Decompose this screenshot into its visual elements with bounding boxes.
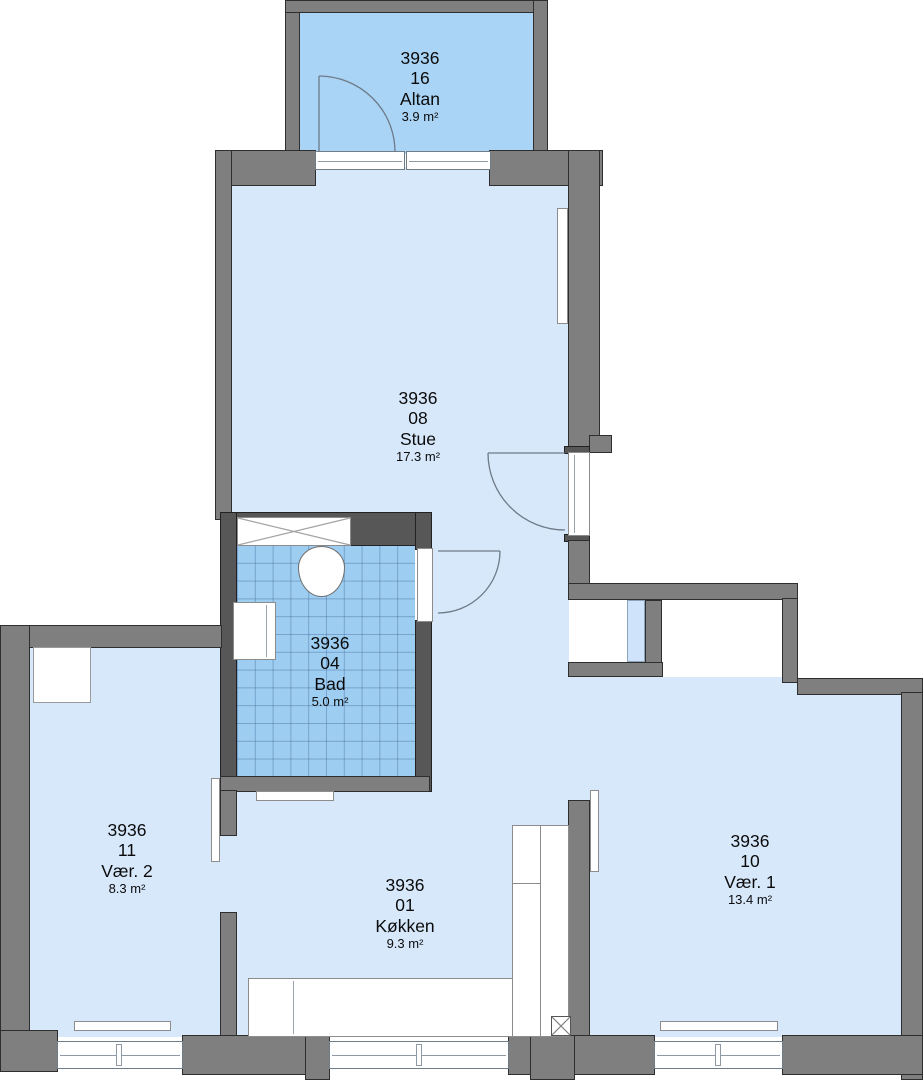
bathroom-wall-right-upper (415, 512, 432, 550)
kitchen-counter-right-upper (512, 825, 541, 884)
balcony-door-window-right (406, 151, 491, 170)
exterior-wall-bottom-1-step (305, 1035, 330, 1080)
room-number: 01 (375, 895, 434, 915)
room-id: 3936 (724, 831, 776, 851)
room-id: 3936 (311, 633, 350, 653)
window-mullion (416, 1044, 422, 1066)
room-name: Vær. 1 (724, 872, 776, 892)
shaft-wall-bottom (568, 662, 663, 677)
exterior-wall-right (901, 692, 923, 1080)
hall-wall-right (568, 540, 590, 585)
room-name: Bad (311, 674, 350, 694)
room-name: Stue (396, 429, 440, 449)
window-kitchen (329, 1041, 509, 1069)
room2-kitchen-wall-upper (220, 790, 237, 836)
living-room-wall-left (215, 150, 232, 520)
living-room-wall-right (568, 150, 600, 453)
room-number: 04 (311, 653, 350, 673)
wardrobe-room2 (33, 647, 91, 703)
bathroom-wall-bottom (220, 776, 430, 792)
window-mullion (715, 1044, 721, 1066)
balcony-wall-top (285, 0, 548, 13)
right-wing-wall-vertical (782, 598, 798, 683)
radiator-room2 (74, 1021, 171, 1031)
window-mullion (116, 1044, 122, 1066)
shaft-opening (627, 600, 645, 662)
room-area: 3.9 m² (400, 109, 440, 124)
ventilation-shaft (551, 1016, 571, 1036)
room-label-kokken: 3936 01 Køkken 9.3 m² (375, 875, 434, 952)
room-name: Køkken (375, 916, 434, 936)
room-id: 3936 (400, 48, 440, 68)
living-room-floor (230, 167, 569, 520)
window-glass-line (409, 161, 488, 162)
room1-door-opening (568, 677, 590, 802)
room1-wall-left (568, 800, 590, 1037)
room1-floor-right (797, 694, 903, 1037)
shaft-wall-top (568, 583, 798, 600)
radiator-room1 (660, 1021, 778, 1031)
entry-door-frame (568, 452, 590, 536)
room-label-vaer2: 3936 11 Vær. 2 8.3 m² (101, 820, 153, 897)
room-label-stue: 3936 08 Stue 17.3 m² (396, 388, 440, 465)
floor-plan: 3936 16 Altan 3.9 m² 3936 08 Stue 17.3 m… (0, 0, 923, 1080)
room-label-bad: 3936 04 Bad 5.0 m² (311, 633, 350, 710)
room-area: 13.4 m² (724, 892, 776, 907)
room-area: 8.3 m² (101, 881, 153, 896)
entry-door-frame-line (574, 455, 575, 533)
bathroom-door-frame (417, 548, 433, 622)
bathroom-cabinet (237, 517, 351, 546)
room-area: 9.3 m² (375, 936, 434, 951)
kitchen-counter-right-lower (512, 883, 541, 1037)
room-name: Altan (400, 89, 440, 109)
balcony-door-window-left (315, 151, 405, 170)
left-wing-wall-top (0, 625, 222, 648)
room-area: 17.3 m² (396, 449, 440, 464)
room-id: 3936 (101, 820, 153, 840)
window-room1 (654, 1041, 783, 1069)
room-number: 10 (724, 851, 776, 871)
living-room-wall-step (589, 435, 612, 453)
exterior-wall-left (0, 625, 30, 1037)
door-leaf-room1 (590, 790, 599, 872)
room2-door-opening (219, 836, 238, 912)
room-label-altan: 3936 16 Altan 3.9 m² (400, 48, 440, 125)
room2-kitchen-wall-lower (220, 912, 237, 1037)
bathroom-wall-right-lower (415, 620, 432, 792)
kitchen-counter-right-outer (540, 825, 569, 1037)
room-id: 3936 (396, 388, 440, 408)
kitchen-counter-bottom (248, 978, 513, 1037)
room-number: 11 (101, 840, 153, 860)
balcony-wall-left (285, 0, 300, 153)
door-leaf-room2 (211, 778, 220, 862)
exterior-wall-bottom-2-step (530, 1035, 575, 1080)
room-label-vaer1: 3936 10 Vær. 1 13.4 m² (724, 831, 776, 908)
window-glass-line (318, 161, 402, 162)
hall-floor (430, 518, 569, 792)
room-number: 16 (400, 68, 440, 88)
room-number: 08 (396, 408, 440, 428)
room-name: Vær. 2 (101, 861, 153, 881)
shelf-below-bathroom (256, 791, 334, 801)
exterior-wall-bottom-corner-left (0, 1030, 58, 1072)
balcony-wall-right (533, 0, 548, 153)
room-area: 5.0 m² (311, 694, 350, 709)
radiator-living-room (557, 208, 568, 324)
room-id: 3936 (375, 875, 434, 895)
exterior-wall-bottom-3 (782, 1035, 923, 1075)
window-room2 (57, 1041, 183, 1069)
sink-basin-line (266, 605, 267, 657)
sink (233, 602, 276, 660)
kitchen-counter-divider (293, 981, 294, 1034)
